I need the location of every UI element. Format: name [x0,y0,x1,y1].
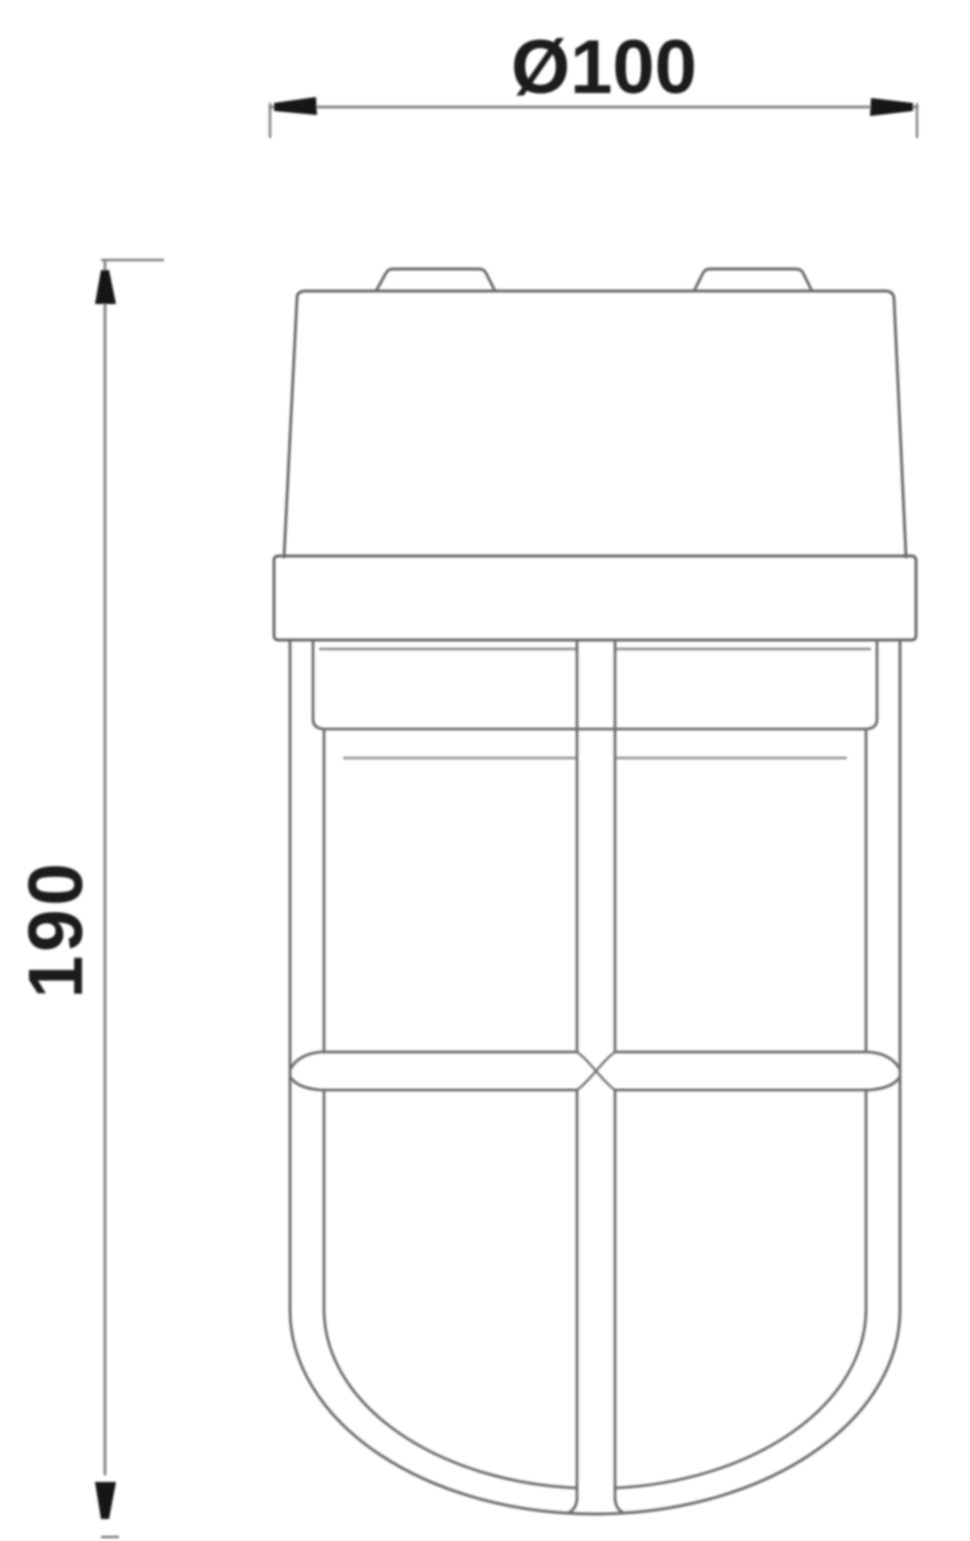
svg-text:190: 190 [13,860,99,999]
svg-text:Ø100: Ø100 [511,25,697,110]
